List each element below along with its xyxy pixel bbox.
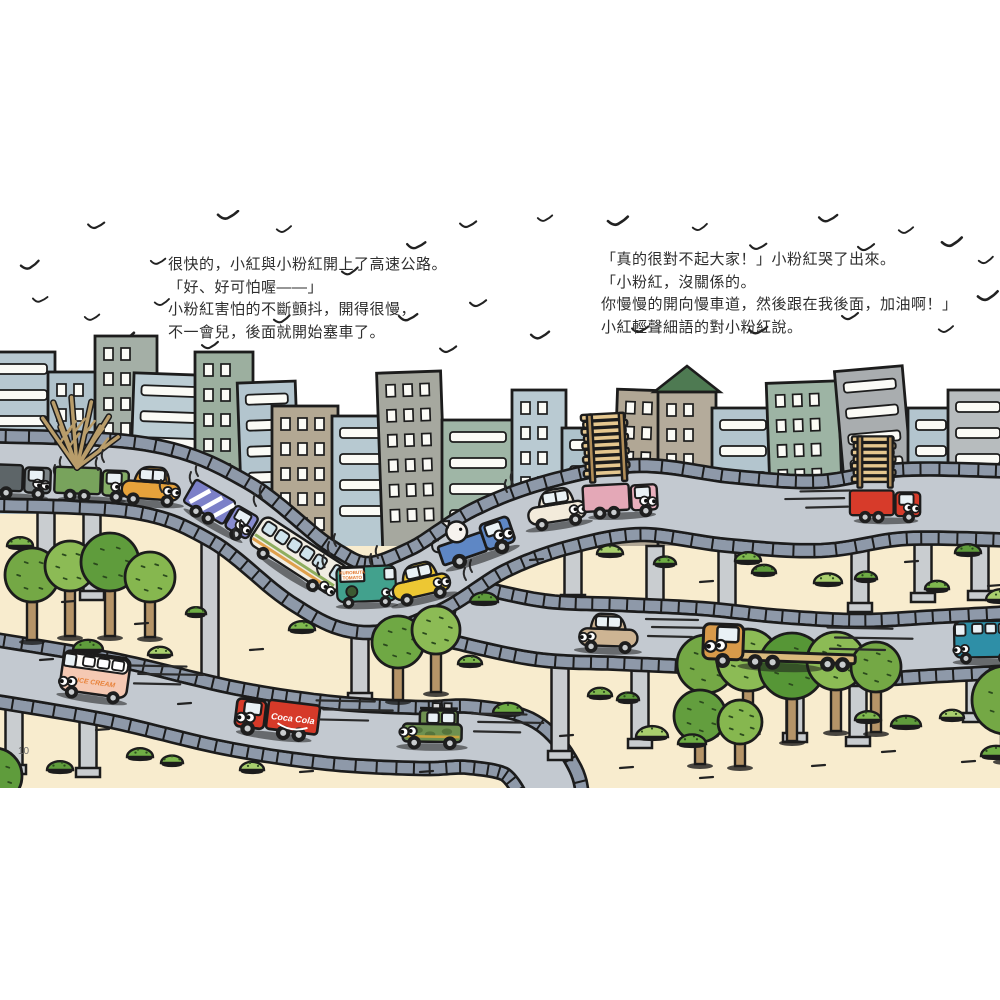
story-line: 「小粉紅，沒關係的。 xyxy=(601,272,958,295)
bush xyxy=(240,762,264,774)
story-line: 「真的很對不起大家！」小粉紅哭了出來。 xyxy=(601,249,958,272)
bush xyxy=(855,711,881,724)
bush xyxy=(458,656,482,668)
bush xyxy=(617,692,639,704)
bush xyxy=(7,537,33,550)
produce-van-vehicle: KUROBUTATOMATO xyxy=(334,565,398,610)
bush xyxy=(127,748,153,761)
bush xyxy=(597,545,623,558)
bush xyxy=(814,573,842,587)
bush xyxy=(678,734,706,748)
bush xyxy=(47,761,73,774)
bush xyxy=(940,710,964,722)
book-page: KUROBUTATOMATOICE CREAMCoca Cola 很快的，小紅與… xyxy=(0,0,1000,1000)
story-text-right: 「真的很對不起大家！」小粉紅哭了出來。 「小粉紅，沒關係的。 你慢慢的開向慢車道… xyxy=(601,249,958,339)
bush xyxy=(855,571,877,583)
bush xyxy=(148,647,172,659)
bush xyxy=(891,716,921,730)
svg-text:TOMATO: TOMATO xyxy=(342,575,362,581)
story-line: 小紅輕聲細語的對小粉紅說。 xyxy=(601,317,958,340)
bush xyxy=(735,552,761,565)
story-line: 你慢慢的開向慢車道，然後跟在我後面，加油啊！」 xyxy=(601,294,958,317)
bush xyxy=(636,726,668,741)
dark-truck-vehicle xyxy=(0,464,51,502)
book-illustration: KUROBUTATOMATOICE CREAMCoca Cola xyxy=(0,0,1000,1000)
bush xyxy=(955,544,981,557)
story-text-left: 很快的，小紅與小粉紅開上了高速公路。 「好、好可怕喔——」 小粉紅害怕的不斷顫抖… xyxy=(168,254,447,344)
bush xyxy=(925,581,949,593)
story-line: 「好、好可怕喔——」 xyxy=(168,277,447,300)
bush xyxy=(186,607,206,619)
story-line: 小粉紅害怕的不斷顫抖，開得很慢， xyxy=(168,299,447,322)
story-line: 很快的，小紅與小粉紅開上了高速公路。 xyxy=(168,254,447,277)
story-line: 不一會兒，後面就開始塞車了。 xyxy=(168,322,447,345)
bush xyxy=(752,565,776,577)
bush xyxy=(654,556,676,568)
bush xyxy=(588,688,612,700)
page-number: 10 xyxy=(18,746,29,757)
bush xyxy=(161,755,183,767)
bush xyxy=(289,621,315,634)
bush xyxy=(470,592,498,606)
